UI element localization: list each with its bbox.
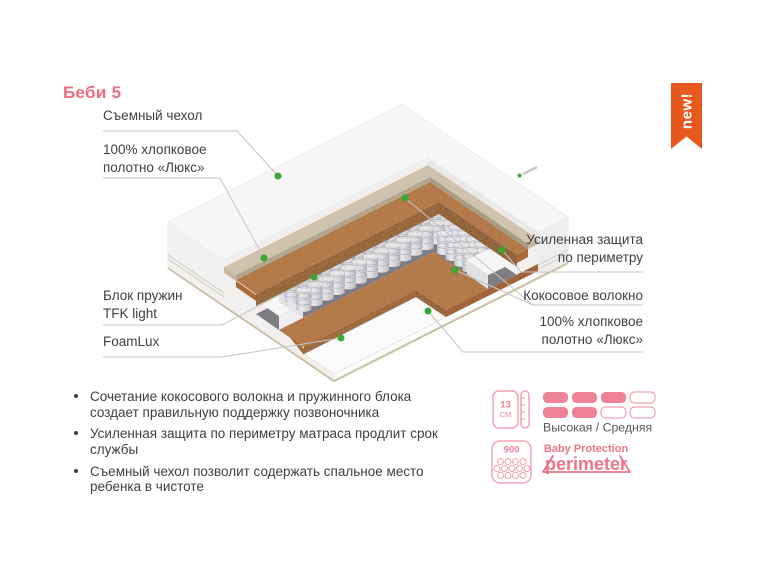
firmness-segment	[601, 407, 626, 418]
height-unit: СМ	[500, 410, 512, 419]
marker-dot-foamlux	[338, 335, 345, 342]
label-spring-block: Блок пружин TFK light	[103, 287, 183, 323]
marker-dot-cotton-bottom	[425, 308, 432, 315]
label-cover: Съемный чехол	[103, 107, 202, 125]
feature-text: Усиленная защита по периметру матраса пр…	[90, 426, 438, 457]
firmness-scale	[543, 392, 655, 418]
feature-list: Сочетание кокосового волокна и пружинног…	[68, 389, 460, 501]
label-foamlux: FoamLux	[103, 333, 159, 351]
bullet-marker	[74, 469, 78, 473]
marker-dot-perimeter	[499, 247, 506, 254]
bullet-marker	[74, 431, 78, 435]
baby-protection-line2: perimeter	[545, 454, 627, 474]
feature-item: Усиленная защита по периметру матраса пр…	[68, 426, 460, 457]
bullet-marker	[74, 394, 78, 398]
marker-dot-cotton-top	[261, 255, 268, 262]
firmness-segment	[543, 392, 568, 403]
firmness-segment	[630, 392, 655, 403]
spring-coil	[296, 287, 311, 312]
baby-protection-logo: Baby Protection perimeter	[543, 443, 630, 474]
label-cotton-bottom: 100% хлопковое полотно «Люкс»	[540, 313, 643, 349]
firmness-segment	[572, 407, 597, 418]
marker-dot-springs	[311, 274, 318, 281]
label-coconut: Кокосовое волокно	[523, 287, 643, 305]
firmness-segment	[543, 407, 568, 418]
firmness-label: Высокая / Средняя	[543, 421, 652, 435]
firmness-segment	[601, 392, 626, 403]
springs-count-value: 900	[504, 445, 520, 456]
marker-dot-coconut-bottom	[452, 267, 459, 274]
label-perimeter: Усиленная защита по периметру	[526, 231, 643, 267]
firmness-segment	[572, 392, 597, 403]
label-cotton-top: 100% хлопковое полотно «Люкс»	[103, 141, 206, 177]
feature-item: Сочетание кокосового волокна и пружинног…	[68, 389, 460, 420]
fabric-brand-mark-icon	[518, 167, 538, 178]
marker-dot-coconut-top	[402, 195, 409, 202]
spec-icons: 13 СМ Высокая / Средняя 900 Baby Protect…	[486, 386, 668, 496]
marker-dot-cover	[275, 173, 282, 180]
feature-text: Съемный чехол позволит содержать спально…	[90, 464, 424, 495]
height-value: 13	[500, 400, 511, 411]
feature-text: Сочетание кокосового волокна и пружинног…	[90, 389, 411, 420]
product-page: Беби 5 new!	[0, 0, 768, 568]
firmness-segment	[630, 407, 655, 418]
feature-item: Съемный чехол позволит содержать спально…	[68, 464, 460, 495]
